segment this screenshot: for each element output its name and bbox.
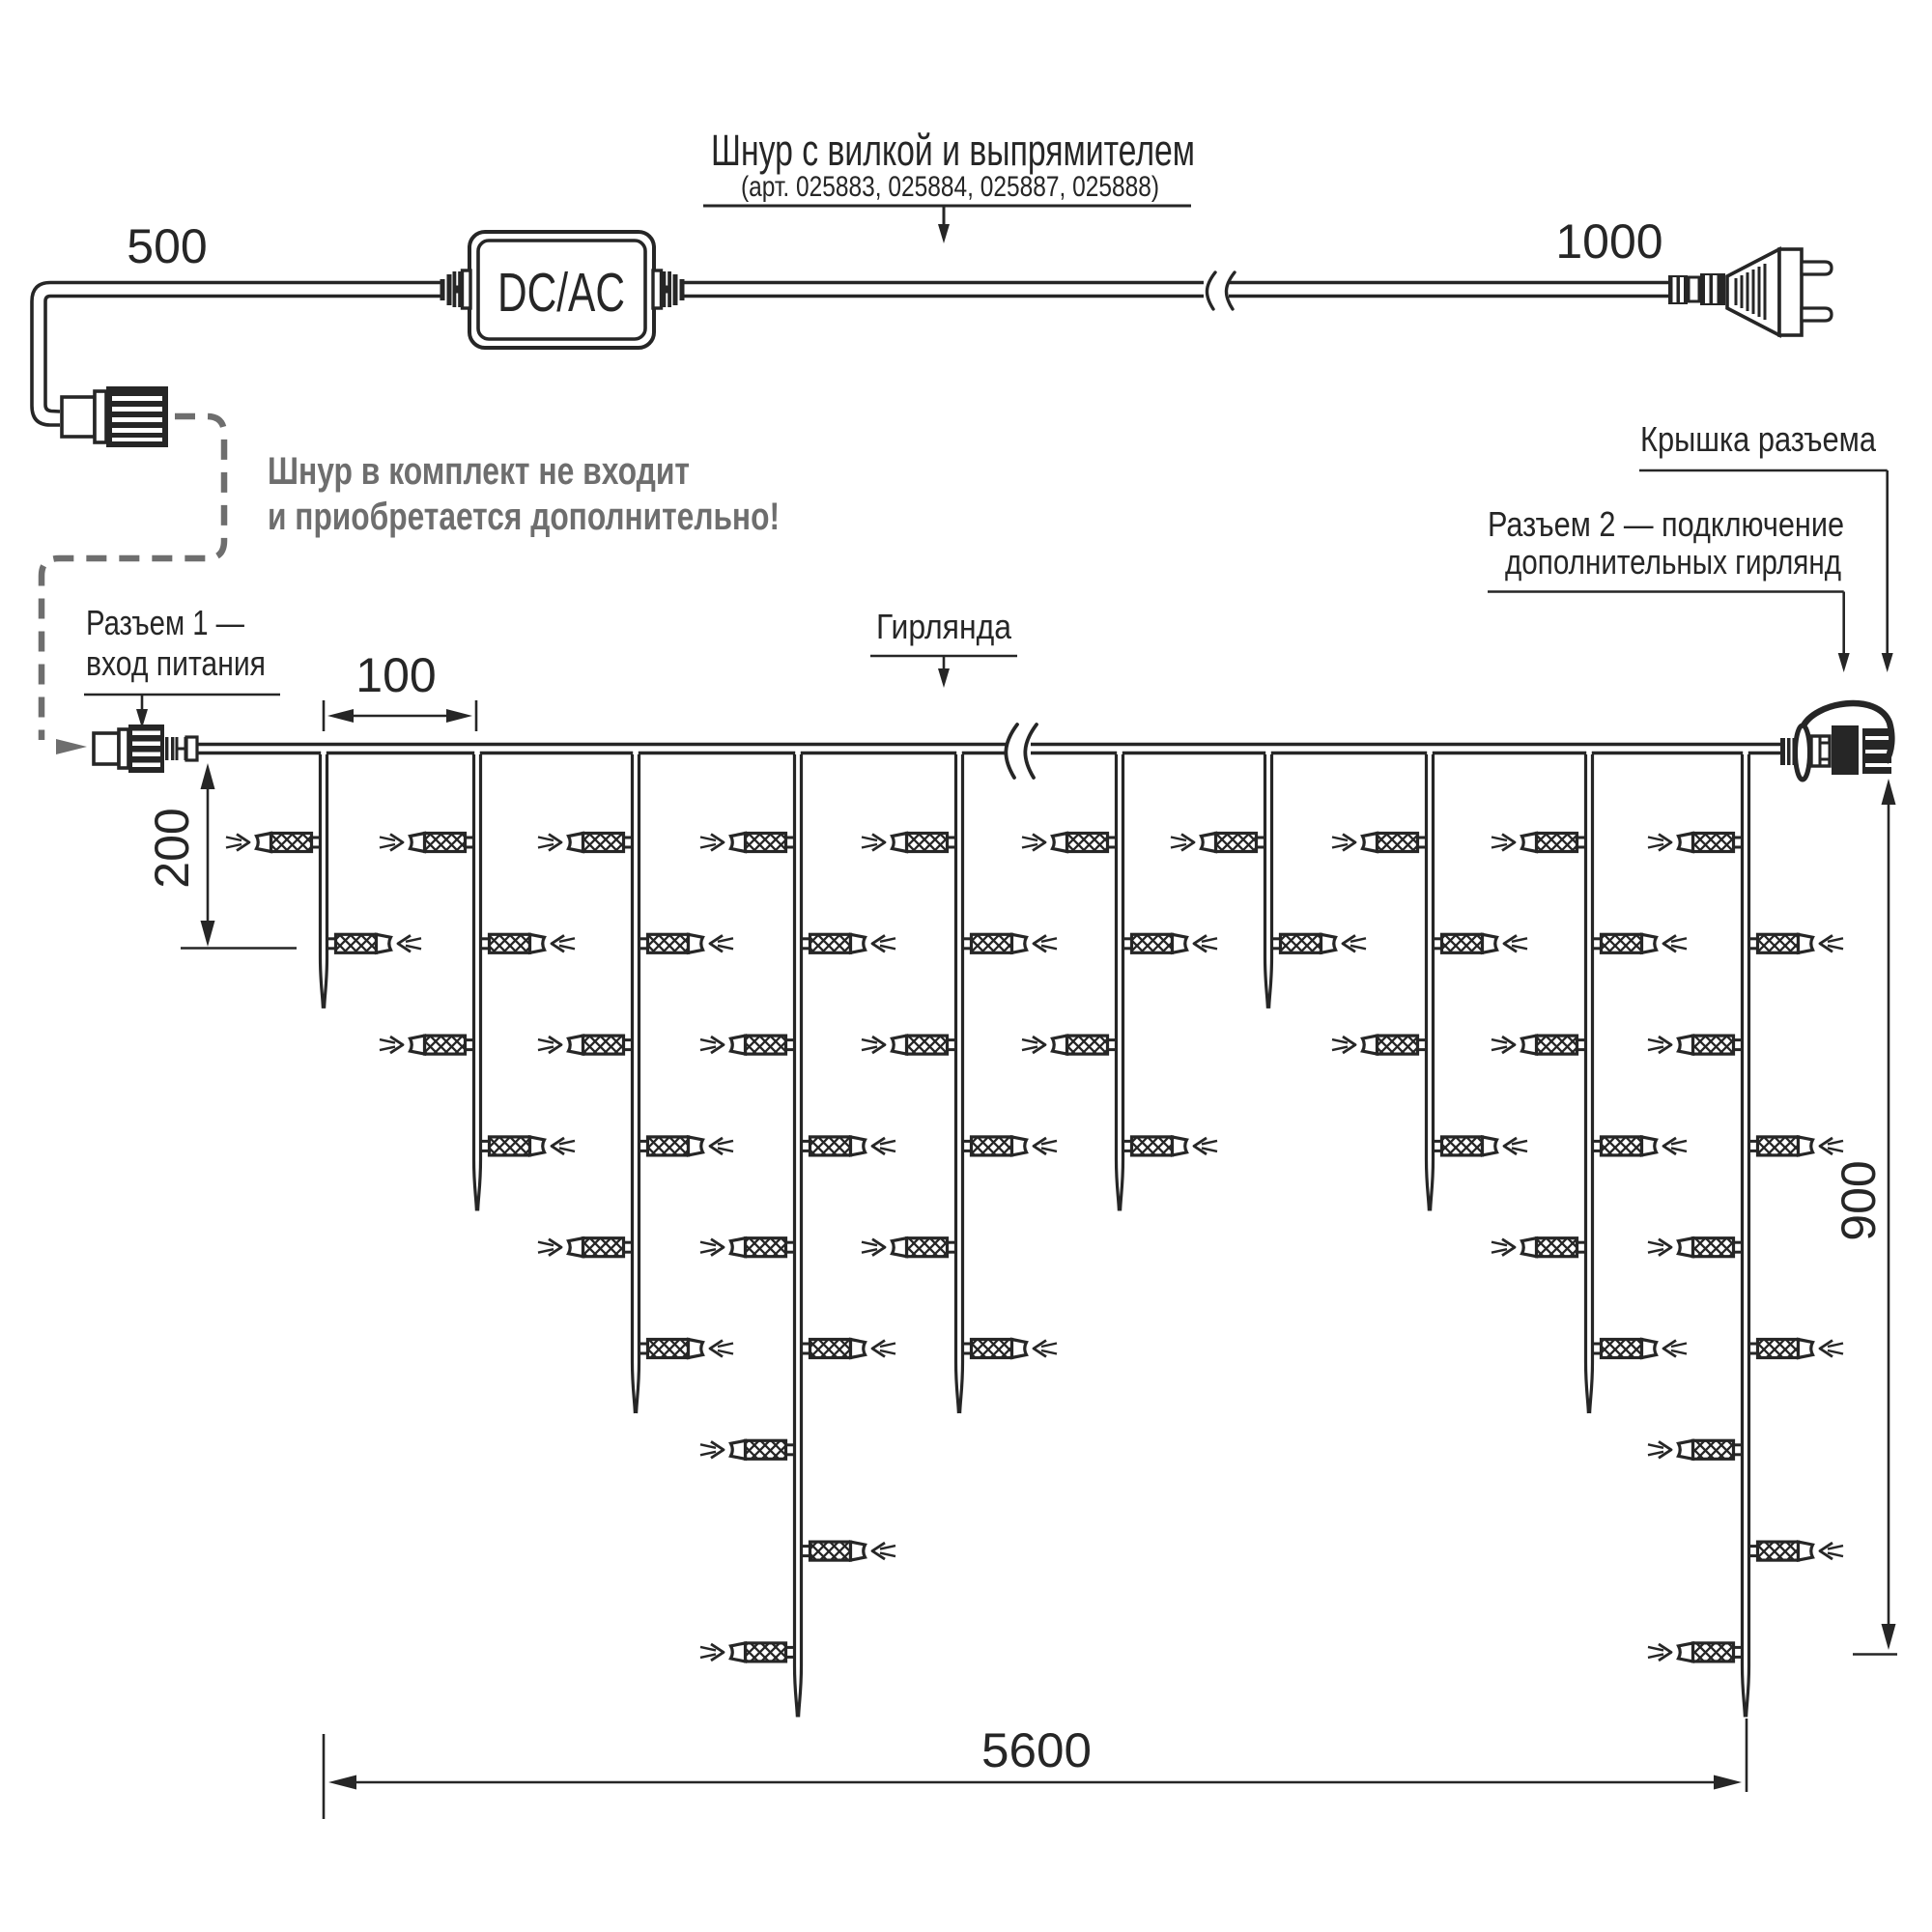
svg-text:Разъем 2 — подключение: Разъем 2 — подключение xyxy=(1488,504,1844,544)
svg-text:5600: 5600 xyxy=(981,1723,1092,1777)
svg-text:вход питания: вход питания xyxy=(86,643,266,683)
svg-text:дополнительных гирлянд: дополнительных гирлянд xyxy=(1505,542,1841,582)
svg-text:Гирлянда: Гирлянда xyxy=(876,607,1012,646)
svg-text:Шнур с вилкой и выпрямителем: Шнур с вилкой и выпрямителем xyxy=(711,126,1195,175)
svg-text:100: 100 xyxy=(355,648,436,702)
svg-text:200: 200 xyxy=(145,808,199,888)
svg-text:Крышка разъема: Крышка разъема xyxy=(1640,419,1877,459)
svg-text:Шнур в комплект не входит: Шнур в комплект не входит xyxy=(268,450,690,493)
svg-text:500: 500 xyxy=(127,219,207,273)
svg-text:DC/AC: DC/AC xyxy=(497,262,625,324)
svg-text:900: 900 xyxy=(1832,1160,1886,1240)
svg-text:(арт. 025883, 025884, 025887,: (арт. 025883, 025884, 025887, 025888) xyxy=(741,171,1159,203)
svg-text:1000: 1000 xyxy=(1555,214,1662,269)
svg-text:и приобретается дополнительно!: и приобретается дополнительно! xyxy=(268,496,780,538)
svg-text:Разъем 1 —: Разъем 1 — xyxy=(86,603,244,642)
